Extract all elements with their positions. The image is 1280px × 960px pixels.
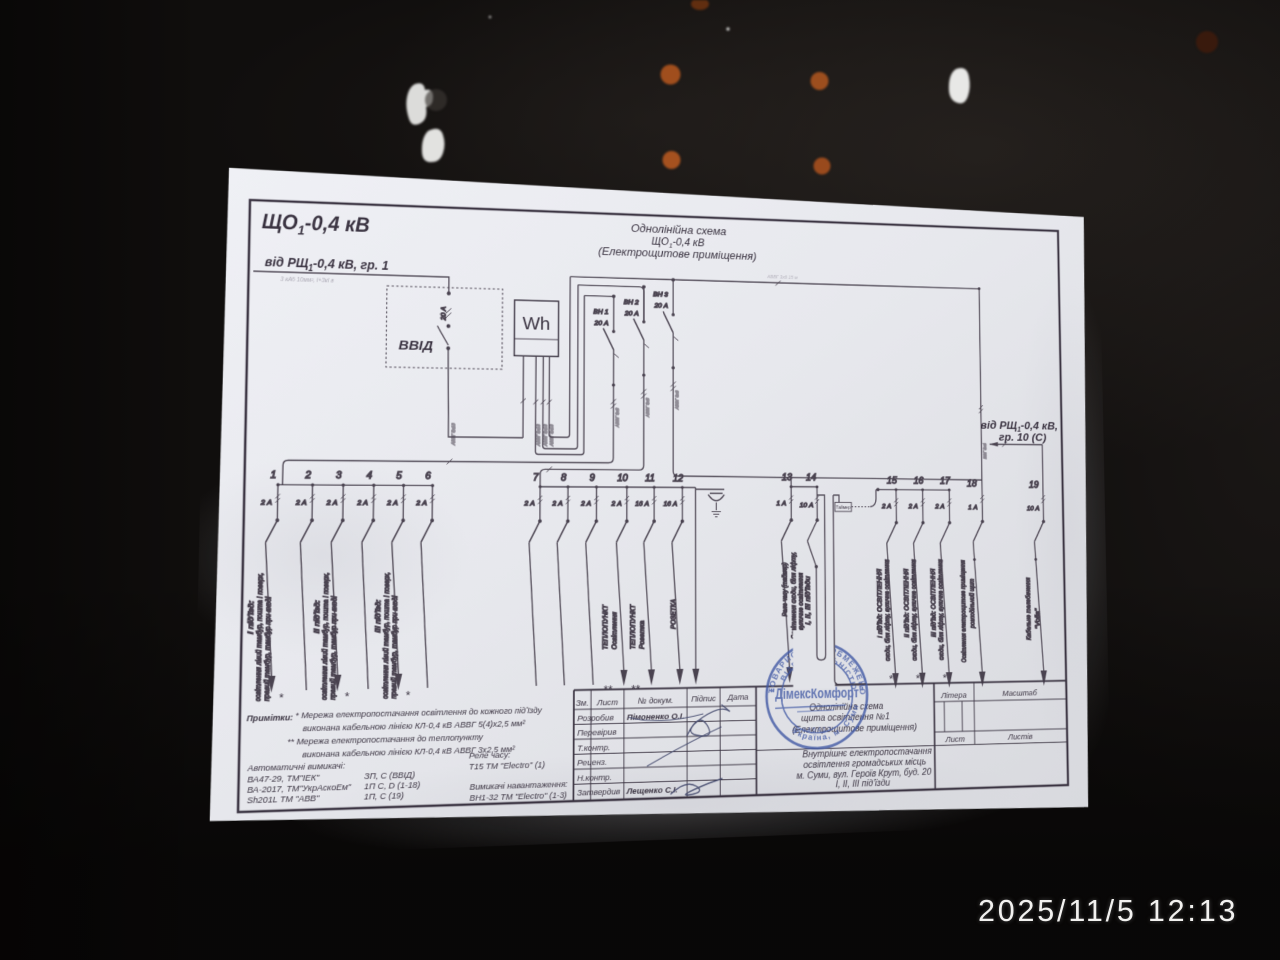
- svg-text:сходи, біля ліфту, вуличне осв: сходи, біля ліфту, вуличне освітлення: [936, 559, 945, 660]
- svg-text:20 А: 20 А: [653, 301, 668, 310]
- svg-text:Кабельне телебачення: Кабельне телебачення: [1024, 577, 1033, 640]
- svg-text:"Volia": "Volia": [1033, 608, 1041, 629]
- svg-text:16: 16: [913, 477, 923, 487]
- svg-text:12: 12: [673, 474, 684, 484]
- svg-text:сходи, біля ліфту, вуличне осв: сходи, біля ліфту, вуличне освітлення: [909, 559, 918, 660]
- svg-text:*: *: [345, 689, 350, 703]
- svg-text:АВВГ 3х6: АВВГ 3х6: [615, 408, 620, 428]
- svg-text:правий тамбур, тамбур при вход: правий тамбур, тамбур при вході: [389, 596, 399, 699]
- svg-text:2 А: 2 А: [386, 499, 398, 507]
- svg-text:5: 5: [396, 471, 402, 482]
- svg-text:4: 4: [366, 471, 372, 482]
- svg-text:Реле часу (таймер): Реле часу (таймер): [780, 562, 788, 616]
- svg-text:9: 9: [589, 473, 595, 483]
- svg-text:№ докум.: № докум.: [638, 695, 674, 705]
- svg-text:ВВІД: ВВІД: [398, 338, 433, 354]
- svg-text:Перевірив: Перевірив: [577, 727, 617, 738]
- svg-text:сходи, біля ліфту, вуличне осв: сходи, біля ліфту, вуличне освітлення: [882, 559, 891, 661]
- svg-text:2 А: 2 А: [551, 500, 562, 508]
- svg-text:6: 6: [425, 472, 431, 483]
- svg-text:2 А: 2 А: [356, 499, 368, 507]
- svg-text:*: *: [279, 691, 284, 705]
- svg-text:Н.контр.: Н.контр.: [577, 772, 612, 783]
- svg-text:АВВГ 3х6 15 м: АВВГ 3х6 15 м: [766, 274, 798, 280]
- svg-text:1П С, D (1-18): 1П С, D (1-18): [364, 780, 420, 792]
- svg-text:Реценз.: Реценз.: [577, 757, 607, 768]
- svg-text:2 А: 2 А: [580, 500, 591, 508]
- svg-text:Примітки:: Примітки:: [246, 712, 293, 723]
- svg-text:3: 3: [336, 471, 342, 482]
- svg-text:17: 17: [940, 477, 950, 487]
- svg-text:2 А: 2 А: [523, 500, 535, 508]
- svg-text:АВВГ 3х6: АВВГ 3х6: [645, 398, 650, 418]
- svg-text:І, ІІ, ІІІ підʼїзди: І, ІІ, ІІІ підʼїзди: [803, 576, 811, 625]
- svg-text:І, ІІ, ІІІ підʼїзди: І, ІІ, ІІІ підʼїзди: [835, 778, 890, 790]
- svg-text:ВН 3: ВН 3: [653, 290, 668, 299]
- svg-text:*: *: [406, 688, 411, 702]
- svg-text:1П, С (19): 1П, С (19): [364, 790, 404, 801]
- svg-text:2 А: 2 А: [295, 499, 307, 507]
- svg-text:ТЕПЛОПУНКТ: ТЕПЛОПУНКТ: [628, 604, 637, 649]
- svg-text:2 А: 2 А: [326, 499, 338, 507]
- svg-text:Реле часу:: Реле часу:: [469, 750, 511, 761]
- svg-text:2 А: 2 А: [611, 500, 622, 508]
- svg-text:АВВГ 3х16: АВВГ 3х16: [536, 424, 541, 447]
- svg-text:2 А: 2 А: [415, 499, 427, 507]
- svg-text:Таймер: Таймер: [836, 504, 851, 510]
- svg-text:Освітлення: Освітлення: [610, 612, 619, 650]
- svg-text:Підпис: Підпис: [691, 694, 716, 704]
- svg-text:Дата: Дата: [727, 692, 749, 702]
- svg-text:7: 7: [533, 473, 539, 484]
- svg-text:10 А: 10 А: [800, 501, 814, 509]
- svg-text:20 А: 20 А: [594, 318, 609, 327]
- svg-text:1 А: 1 А: [968, 504, 978, 511]
- svg-text:1 А: 1 А: [776, 500, 786, 507]
- svg-text:Лист: Лист: [596, 697, 618, 707]
- svg-text:гр. 10 (С): гр. 10 (С): [999, 431, 1047, 444]
- svg-text:розподільний щит: розподільний щит: [968, 579, 976, 629]
- svg-text:2: 2: [304, 471, 311, 482]
- svg-text:8: 8: [561, 473, 567, 484]
- svg-text:Освітлення електрощитове примі: Освітлення електрощитове приміщення: [959, 560, 968, 663]
- svg-text:2 А: 2 А: [881, 502, 892, 509]
- svg-text:правий тамбур, тамбур при вход: правий тамбур, тамбур при вході: [262, 596, 273, 701]
- svg-text:правий тамбур, тамбур при вход: правий тамбур, тамбур при вході: [328, 596, 339, 700]
- svg-text:10: 10: [617, 473, 628, 483]
- svg-text:Розетка: Розетка: [637, 621, 645, 650]
- svg-text:Лещенко С.І.: Лещенко С.І.: [626, 785, 678, 796]
- svg-text:20 А: 20 А: [441, 306, 448, 321]
- svg-text:Затвердив: Затвердив: [577, 787, 621, 798]
- svg-text:2 А: 2 А: [934, 503, 944, 510]
- svg-text:АВВГ 3х6: АВВГ 3х6: [675, 390, 680, 410]
- svg-text:АВВГ 3х16: АВВГ 3х16: [549, 424, 554, 447]
- svg-text:15: 15: [887, 476, 897, 486]
- svg-text:2 А: 2 А: [260, 499, 272, 507]
- svg-text:АВВГ 3х16: АВВГ 3х16: [543, 424, 548, 447]
- svg-text:1: 1: [270, 470, 276, 481]
- svg-text:Лист: Лист: [945, 734, 965, 744]
- svg-text:14: 14: [806, 473, 816, 483]
- svg-text:Масштаб: Масштаб: [1002, 688, 1038, 698]
- svg-text:Літера: Літера: [940, 690, 967, 700]
- svg-text:20 А: 20 А: [624, 308, 639, 317]
- svg-text:2 А: 2 А: [908, 503, 919, 510]
- svg-text:ВН 1: ВН 1: [593, 307, 608, 316]
- svg-text:Зм.: Зм.: [576, 698, 589, 708]
- svg-text:Wh: Wh: [522, 313, 550, 334]
- svg-text:19: 19: [1029, 480, 1039, 490]
- svg-text:Т.контр.: Т.контр.: [577, 742, 610, 753]
- svg-text:Розробив: Розробив: [577, 713, 614, 724]
- svg-text:РОЗЕТКА: РОЗЕТКА: [669, 599, 677, 629]
- svg-text:40946417: 40946417: [792, 727, 832, 735]
- svg-text:АВВГ 5х10: АВВГ 5х10: [451, 423, 456, 446]
- svg-text:ВН 2: ВН 2: [624, 297, 639, 306]
- svg-text:13: 13: [782, 473, 793, 483]
- svg-text:16 А: 16 А: [635, 500, 649, 508]
- svg-text:ТЕПЛОПУНКТ: ТЕПЛОПУНКТ: [601, 604, 610, 649]
- svg-text:10 А: 10 А: [1027, 505, 1040, 512]
- svg-text:18: 18: [967, 479, 977, 489]
- svg-text:Листів: Листів: [1007, 732, 1033, 742]
- svg-text:ВВГ 3х4: ВВГ 3х4: [983, 443, 987, 459]
- svg-text:11: 11: [645, 474, 655, 484]
- svg-text:16 А: 16 А: [664, 501, 678, 509]
